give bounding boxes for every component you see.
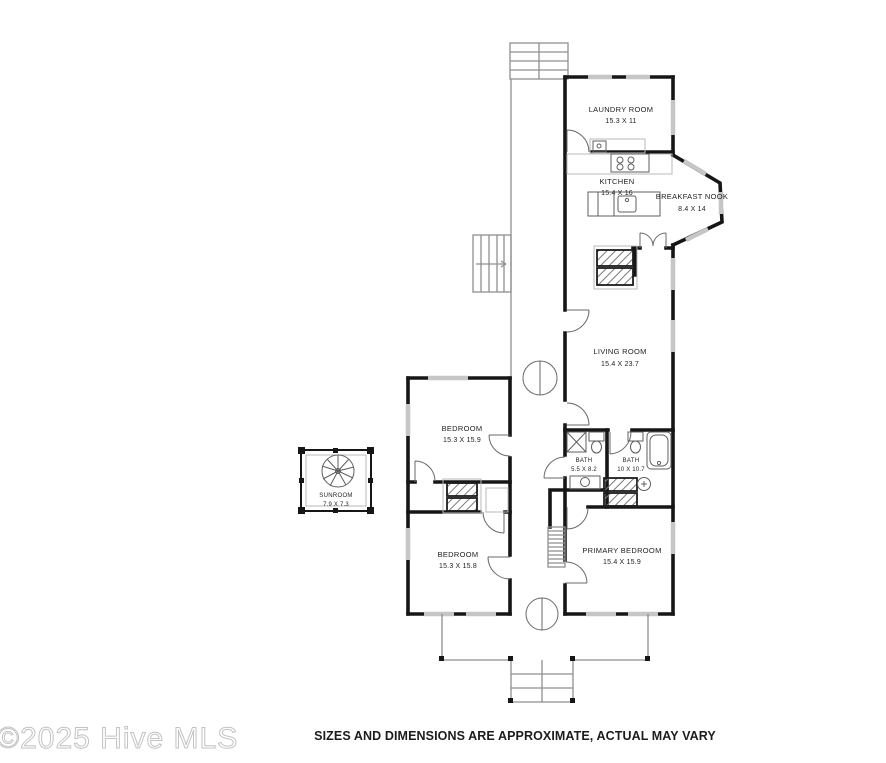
interior-walls-right xyxy=(550,152,673,527)
room-label-laundry: LAUNDRY ROOM 15.3 X 11 xyxy=(589,105,654,125)
bath-small-name: BATH xyxy=(576,458,593,464)
main-wing-walls xyxy=(565,77,722,614)
floor-plan-page: LAUNDRY ROOM 15.3 X 11 KITCHEN 15.4 X 16… xyxy=(0,0,886,763)
room-label-breakfast-nook: BREAKFAST NOOK 8.4 X 14 xyxy=(656,192,728,213)
room-label-primary: PRIMARY BEDROOM 15.4 X 15.9 xyxy=(582,546,661,566)
footer: ©2025 Hive MLS SIZES AND DIMENSIONS ARE … xyxy=(0,722,716,755)
primary-dims: 15.4 X 15.9 xyxy=(603,559,641,566)
kitchen-dims: 15.4 X 16 xyxy=(601,190,633,197)
room-label-living: LIVING ROOM 15.4 X 23.7 xyxy=(593,347,646,368)
sunroom-name: SUNROOM xyxy=(319,493,352,499)
breakfast-nook-name: BREAKFAST NOOK xyxy=(656,192,728,201)
mls-watermark: ©2025 Hive MLS xyxy=(0,722,238,755)
room-label-kitchen: KITCHEN 15.4 X 16 xyxy=(599,177,634,197)
bath-large-dims: 10 X 10.7 xyxy=(617,467,645,473)
floor-plan-drawing: LAUNDRY ROOM 15.3 X 11 KITCHEN 15.4 X 16… xyxy=(0,0,886,763)
room-label-bedroom-upper: BEDROOM 15.3 X 15.9 xyxy=(442,424,483,444)
hall-staircase xyxy=(548,527,565,567)
room-label-bedroom-lower: BEDROOM 15.3 X 15.8 xyxy=(438,550,479,570)
room-label-bath-large: BATH 10 X 10.7 xyxy=(617,458,645,473)
laundry-dims: 15.3 X 11 xyxy=(605,118,636,125)
side-stairs xyxy=(473,235,511,292)
room-label-sunroom: SUNROOM 7.9 X 7.3 xyxy=(319,493,352,508)
laundry-name: LAUNDRY ROOM xyxy=(589,105,654,114)
bottom-porch xyxy=(439,614,650,703)
bath-large-name: BATH xyxy=(623,458,640,464)
living-dims: 15.4 X 23.7 xyxy=(601,361,639,368)
bedroom-upper-dims: 15.3 X 15.9 xyxy=(443,437,481,444)
room-label-bath-small: BATH 5.5 X 8.2 xyxy=(571,458,597,473)
bedroom-lower-dims: 15.3 X 15.8 xyxy=(439,563,477,570)
bedroom-lower-name: BEDROOM xyxy=(438,550,479,559)
bedroom-upper-name: BEDROOM xyxy=(442,424,483,433)
top-deck-stairs xyxy=(510,43,568,79)
spiral-staircase xyxy=(322,455,354,487)
sunroom-dims: 7.9 X 7.3 xyxy=(323,502,349,508)
primary-name: PRIMARY BEDROOM xyxy=(582,546,661,555)
breakfast-nook-dims: 8.4 X 14 xyxy=(678,206,706,213)
disclaimer-text: SIZES AND DIMENSIONS ARE APPROXIMATE, AC… xyxy=(314,729,716,743)
bath-small-dims: 5.5 X 8.2 xyxy=(571,467,597,473)
living-name: LIVING ROOM xyxy=(593,347,646,356)
kitchen-name: KITCHEN xyxy=(599,177,634,186)
room-labels: LAUNDRY ROOM 15.3 X 11 KITCHEN 15.4 X 16… xyxy=(319,105,728,570)
